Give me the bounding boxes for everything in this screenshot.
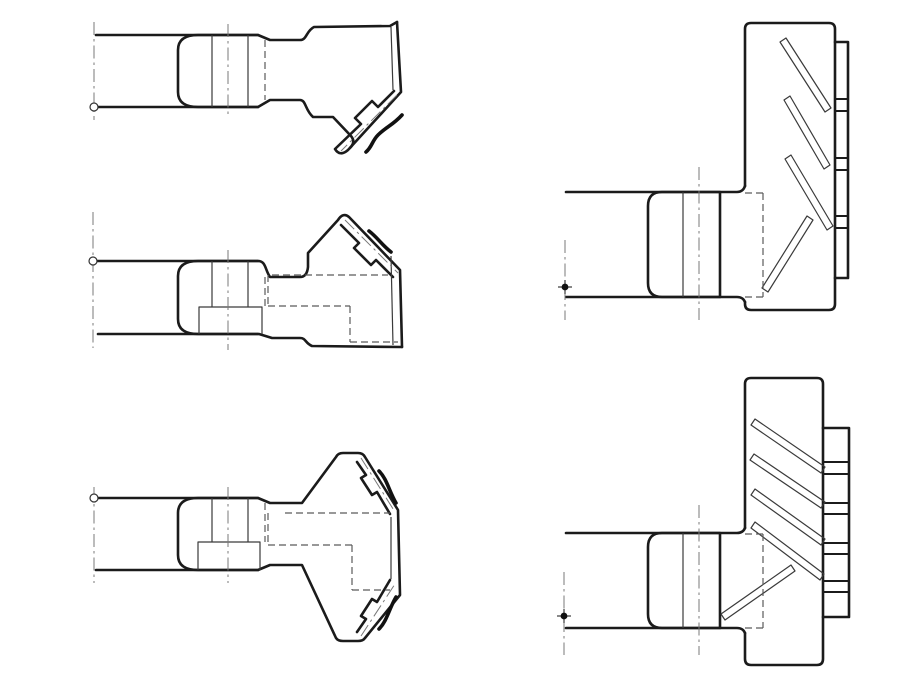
hub-rect bbox=[199, 307, 262, 334]
break-line-bottom bbox=[379, 597, 396, 629]
hub-rect bbox=[198, 542, 260, 570]
axis-marker bbox=[90, 494, 98, 502]
view-pinion-stage-1 bbox=[90, 22, 402, 153]
outline-silhouette bbox=[96, 453, 400, 641]
view-pinion-stage-3 bbox=[90, 453, 400, 641]
tooth-slot-3 bbox=[785, 155, 833, 230]
journal-sleeve bbox=[648, 192, 720, 297]
outline-top bbox=[96, 22, 397, 40]
drawing-canvas bbox=[0, 0, 913, 684]
view-gear-flange-1 bbox=[558, 23, 848, 320]
engineering-drawing-svg bbox=[0, 0, 913, 684]
flank-inner-line bbox=[341, 225, 393, 277]
rim-inner-line bbox=[391, 27, 393, 90]
tooth-slot-2 bbox=[750, 454, 825, 508]
tooth-strip bbox=[823, 428, 849, 617]
datum-dot bbox=[562, 284, 569, 291]
journal-sleeve bbox=[648, 533, 720, 628]
tooth-slot-1 bbox=[780, 38, 831, 112]
rim-inner-line bbox=[391, 256, 393, 345]
axis-marker bbox=[89, 257, 97, 265]
tooth-slot-4 bbox=[762, 216, 813, 292]
tooth-slot-2 bbox=[784, 96, 830, 169]
flank-inner-bottom bbox=[357, 580, 390, 632]
outline-bottom bbox=[98, 334, 402, 347]
view-pinion-stage-2 bbox=[89, 212, 402, 350]
outline-top bbox=[96, 215, 402, 347]
tooth-slot-5 bbox=[721, 565, 795, 620]
journal-sleeve bbox=[178, 498, 258, 570]
journal-sleeve bbox=[178, 261, 258, 334]
view-gear-flange-2 bbox=[557, 378, 849, 665]
datum-dot bbox=[561, 613, 568, 620]
tooth-strip bbox=[835, 42, 848, 278]
axis-marker bbox=[90, 103, 98, 111]
journal-sleeve bbox=[178, 35, 258, 107]
tooth-slot-1 bbox=[751, 419, 825, 473]
flange-outline bbox=[745, 378, 823, 665]
